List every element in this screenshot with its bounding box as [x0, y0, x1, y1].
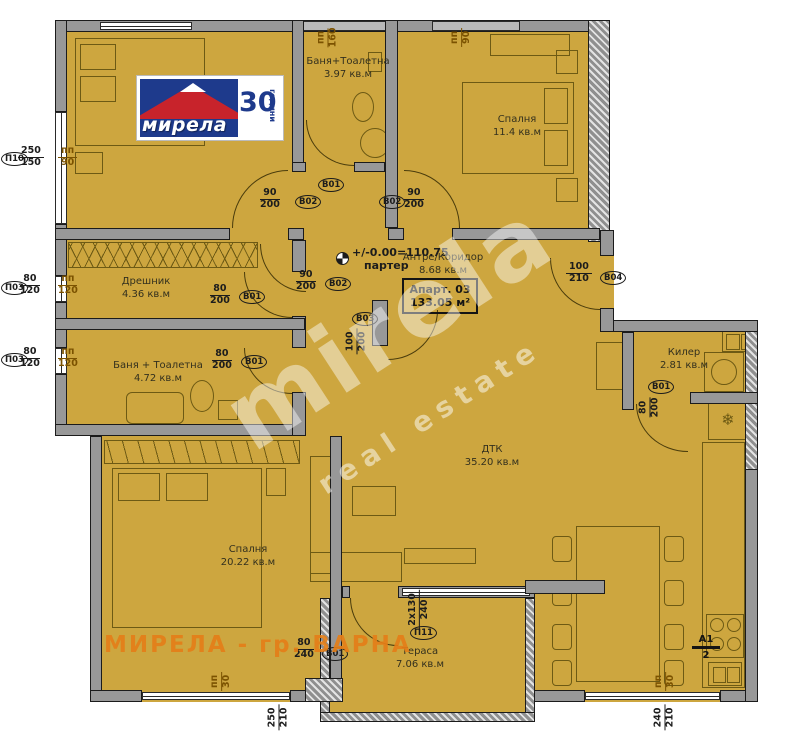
- wall-pantry-bottom: [690, 392, 758, 404]
- watermark-city: МИРЕЛА - гр. ВАРНА: [104, 632, 412, 658]
- section-mark-a1: A1 2: [692, 634, 720, 661]
- dim-p11: 2x130 240: [408, 590, 431, 629]
- chair: [552, 536, 572, 562]
- wall-right-upper: [588, 20, 610, 242]
- window-bedroom-tr-top: [432, 21, 520, 31]
- dim-bottom-left: 250 210: [268, 705, 291, 731]
- dim-pp30-right: пп 30: [654, 672, 677, 691]
- dim-b03: 100 200: [346, 329, 369, 355]
- dim-p03a: 80 120: [20, 274, 40, 297]
- nightstand: [75, 152, 103, 174]
- wall-bath-top-left: [292, 20, 304, 168]
- chair: [664, 624, 684, 650]
- window-bath-top: [300, 21, 388, 31]
- room-area: 2.81 кв.м: [660, 359, 708, 372]
- room-area: 8.68 кв.м: [403, 264, 484, 277]
- wall-mid-stub: [288, 228, 304, 240]
- toilet-icon: [352, 92, 374, 122]
- wall-terrace-top-stub: [342, 586, 350, 598]
- wall-entrance-stub: [600, 308, 614, 332]
- chair: [664, 580, 684, 606]
- room-area: 7.06 кв.м: [396, 658, 444, 671]
- shower-tray-icon: [126, 392, 184, 424]
- tv-cabinet: [404, 548, 476, 564]
- room-label-dressing: Дрешник 4.36 кв.м: [122, 275, 171, 301]
- wall-mid-horizontal: [55, 228, 230, 240]
- room-name: Спалня: [493, 113, 541, 126]
- dim-b01-dressing: 80 200: [210, 284, 230, 307]
- room-name: Килер: [660, 346, 708, 359]
- level-value: +/-0.00=110.75: [352, 246, 449, 259]
- fridge-icon: ❄: [708, 402, 748, 440]
- wall-left: [55, 20, 67, 112]
- washbasin-icon: [218, 400, 238, 420]
- door-tag-b04: В04: [600, 271, 626, 285]
- wall-living-terrace-corner: [525, 580, 605, 594]
- room-label-bath-top: Баня+Тоалетна 3.97 кв.м: [306, 55, 389, 81]
- chair: [664, 536, 684, 562]
- dim-b02-right: 90 200: [404, 188, 424, 211]
- dim-pp90-tr: пп 90: [450, 28, 473, 47]
- wall-pantry-top: [600, 320, 758, 332]
- wall-bath-top-bottom: [354, 162, 385, 172]
- section-bar: [692, 646, 720, 649]
- wall-corridor-left: [292, 240, 306, 272]
- room-area: 35.20 кв.м: [465, 456, 519, 469]
- mirela-logo-main: мирела: [140, 79, 238, 137]
- apartment-name: Апарт. 03: [408, 283, 472, 296]
- wall-terrace-corner-hatch: [305, 678, 343, 702]
- apartment-info-box: Апарт. 03 133.05 м²: [402, 278, 478, 314]
- pillow: [166, 473, 208, 501]
- wall-corridor-left: [292, 392, 306, 436]
- cabinet: [596, 342, 624, 390]
- room-area: 3.97 кв.м: [306, 68, 389, 81]
- wall-dressing-bath: [55, 318, 305, 330]
- window-bedroom-tl-top: [100, 22, 192, 30]
- pillow: [544, 130, 568, 166]
- dining-table: [576, 526, 660, 682]
- room-area: 11.4 кв.м: [493, 126, 541, 139]
- roof-peak-icon: [180, 83, 206, 92]
- dim-p10: 250 150: [18, 146, 44, 169]
- wardrobe-dressing: [68, 242, 258, 268]
- room-label-bedroom-tr: Спалня 11.4 кв.м: [493, 113, 541, 139]
- room-name: Баня + Тоалетна: [113, 359, 203, 372]
- level-floor: партер: [364, 259, 409, 272]
- snowflake-icon: ❄: [709, 410, 747, 429]
- mirela-logo-badge: 30 години: [238, 79, 280, 137]
- washing-machine-drum: [711, 359, 737, 385]
- wall-bath-top-bottom-stub: [292, 162, 306, 172]
- room-name: Баня+Тоалетна: [306, 55, 389, 68]
- room-area: 4.72 кв.м: [113, 372, 203, 385]
- dim-b01-pantry: 80 200: [639, 398, 662, 418]
- wardrobe-bedroom-bl: [104, 440, 300, 464]
- room-area: 20.22 кв.м: [221, 556, 275, 569]
- room-area: 4.36 кв.м: [122, 288, 171, 301]
- wall-terrace-bottom: [320, 712, 535, 722]
- room-label-living: ДТК 35.20 кв.м: [465, 443, 519, 469]
- pillow: [80, 76, 116, 102]
- window-bedroom-bl-bottom: [142, 692, 290, 700]
- wall-pantry-left: [622, 332, 634, 410]
- dim-b04: 100 210: [566, 262, 592, 285]
- pillow: [80, 44, 116, 70]
- logo-years-label: години: [268, 89, 277, 122]
- wall-bottom: [90, 690, 142, 702]
- room-label-pantry: Килер 2.81 кв.м: [660, 346, 708, 372]
- nightstand: [556, 50, 578, 74]
- sofa-horizontal: [310, 552, 402, 582]
- wall-mid-stub: [388, 228, 404, 240]
- dim-p03a-parapet: пп 120: [58, 274, 78, 297]
- logo-brand-text: мирела: [142, 114, 227, 136]
- dim-bottom-right: 240 210: [654, 705, 677, 731]
- washing-machine-icon: [704, 352, 744, 392]
- nightstand: [266, 468, 286, 496]
- window-kitchen-bottom: [585, 692, 720, 700]
- room-name: ДТК: [465, 443, 519, 456]
- wall-bedroom-bl-right: [330, 436, 342, 702]
- nightstand: [556, 178, 578, 202]
- level-marker-icon: [336, 252, 349, 265]
- kitchen-sink-icon: [708, 662, 742, 686]
- room-label-bath-left: Баня + Тоалетна 4.72 кв.м: [113, 359, 203, 385]
- dim-p03b-parapet: пп 120: [58, 347, 78, 370]
- room-label-bedroom-bl: Спалня 20.22 кв.м: [221, 543, 275, 569]
- dim-p10-parapet: пп 90: [58, 146, 77, 169]
- apartment-area: 133.05 м²: [408, 296, 472, 309]
- coffee-table: [352, 486, 396, 516]
- mirela-logo: мирела 30 години: [137, 76, 283, 140]
- floor-plan: ❄: [0, 0, 800, 743]
- wall-mid-horizontal: [452, 228, 600, 240]
- room-name: Дрешник: [122, 275, 171, 288]
- dim-p03b: 80 120: [20, 347, 40, 370]
- window-tag-p11: П11: [410, 626, 437, 640]
- pillow: [118, 473, 160, 501]
- dim-b01-bath-left: 80 200: [212, 349, 232, 372]
- dim-b02-left: 90 200: [260, 188, 280, 211]
- wall-bath-left-bottom: [55, 424, 305, 436]
- dim-pp160: пп 160: [317, 28, 340, 48]
- chair: [552, 624, 572, 650]
- dim-pp30-left: пп 30: [210, 672, 233, 691]
- pillow: [544, 88, 568, 124]
- wall-bedroom-bl-left: [90, 436, 102, 702]
- wall-terrace-right: [525, 598, 535, 722]
- room-name: Спалня: [221, 543, 275, 556]
- dim-b02-hall: 90 200: [296, 270, 316, 293]
- wall-entrance-stub: [600, 230, 614, 256]
- chair: [552, 660, 572, 686]
